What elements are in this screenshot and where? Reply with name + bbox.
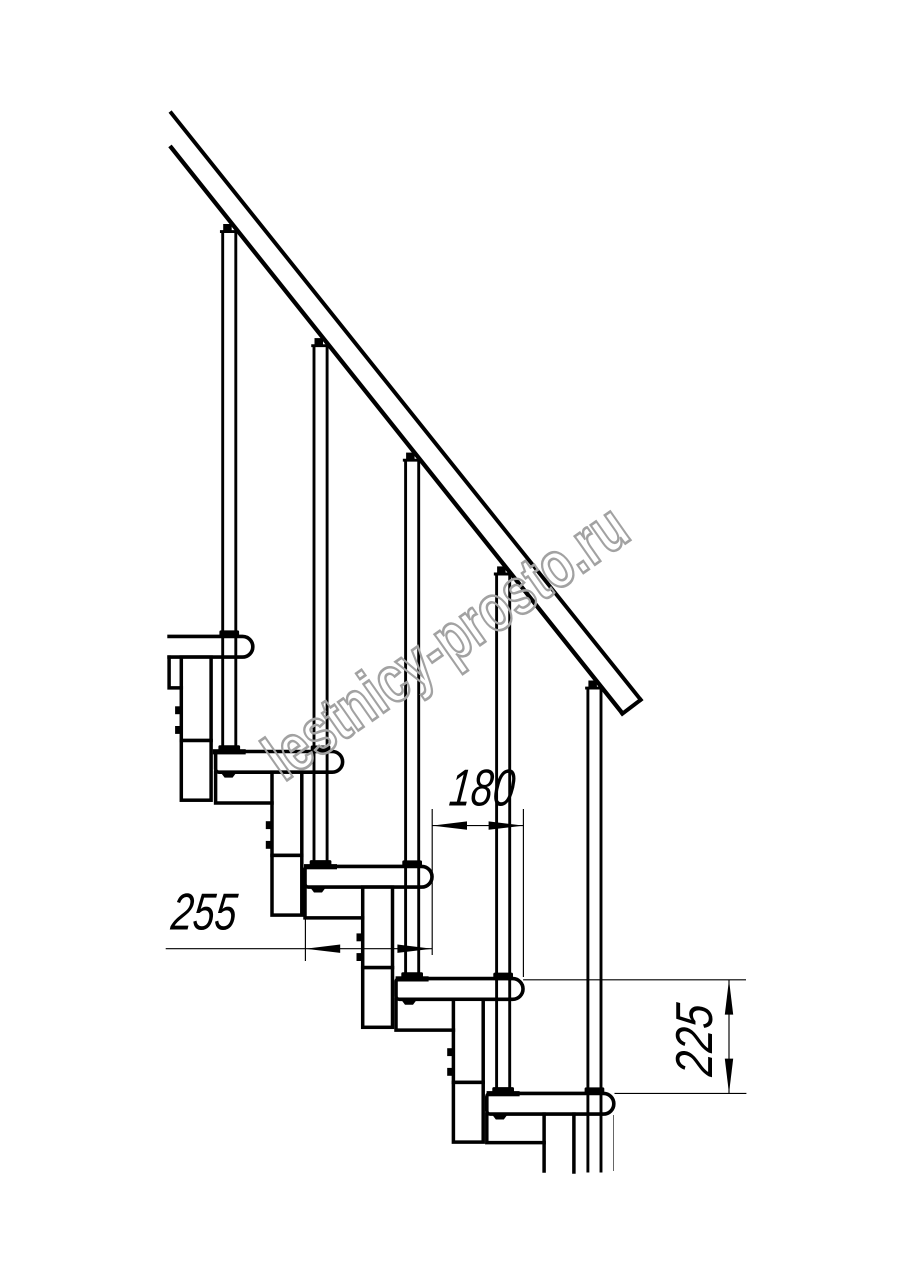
svg-text:225: 225 — [666, 1001, 724, 1080]
svg-text:180: 180 — [447, 758, 519, 817]
svg-text:255: 255 — [168, 882, 240, 941]
